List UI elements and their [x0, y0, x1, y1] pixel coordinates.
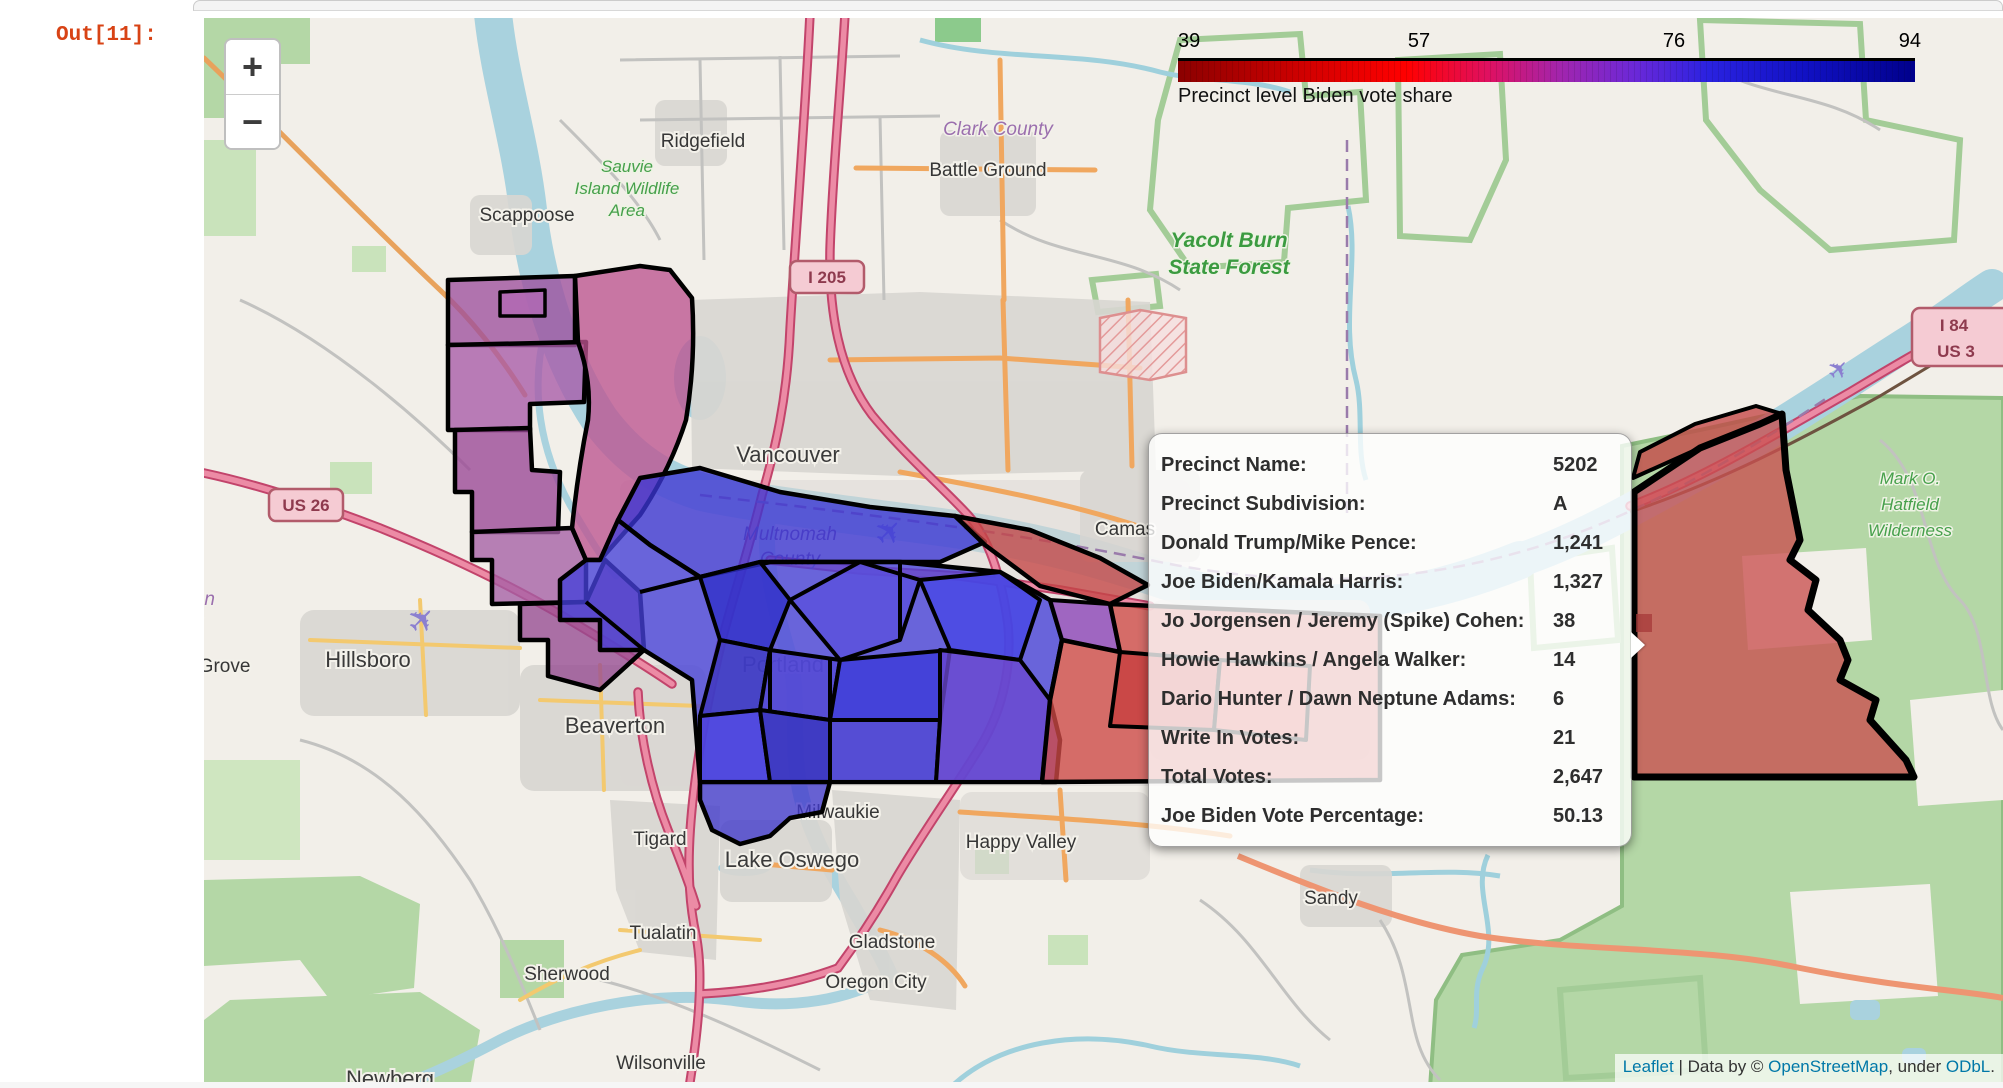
shield-label: US 26: [282, 496, 329, 515]
choropleth-legend: 39 57 76 94 Precinct level Biden vote sh…: [1178, 30, 1915, 108]
tooltip-label: Precinct Name:: [1161, 454, 1553, 477]
precinct-tooltip: Precinct Name: 5202 Precinct Subdivision…: [1148, 433, 1632, 847]
tooltip-value: 50.13: [1553, 805, 1619, 828]
tooltip-row: Joe Biden Vote Percentage: 50.13: [1161, 797, 1619, 836]
legend-tick: 94: [1899, 30, 1921, 53]
tooltip-label: Write In Votes:: [1161, 727, 1553, 750]
tooltip-value: 5202: [1553, 454, 1619, 477]
output-frame-top-bar: [193, 0, 2003, 11]
zoom-in-button[interactable]: +: [226, 40, 279, 94]
legend-caption: Precinct level Biden vote share: [1178, 85, 1915, 108]
nature-label: Area: [608, 201, 645, 220]
map-canvas: ✈ ✈ ✈ Ridgefield Clark County Battle Gro…: [204, 18, 2003, 1082]
tooltip-row: Precinct Subdivision: A: [1161, 485, 1619, 524]
city-label: Hillsboro: [325, 647, 411, 672]
nature-label: Hatfield: [1881, 495, 1939, 514]
zoom-out-button[interactable]: −: [226, 94, 279, 148]
attribution-text: .: [1990, 1057, 1995, 1076]
city-label: Sandy: [1304, 888, 1358, 909]
nature-label: Mark O.: [1880, 469, 1940, 488]
tooltip-value: 2,647: [1553, 766, 1619, 789]
odbl-link[interactable]: ODbL: [1946, 1057, 1990, 1076]
city-label: Ridgefield: [661, 131, 746, 152]
city-label: Wilsonville: [616, 1053, 706, 1074]
city-label: Tigard: [633, 829, 686, 850]
leaflet-link[interactable]: Leaflet: [1623, 1057, 1674, 1076]
city-label: Happy Valley: [966, 832, 1077, 853]
tooltip-row: Write In Votes: 21: [1161, 719, 1619, 758]
city-label: Lake Oswego: [725, 847, 860, 872]
tooltip-value: A: [1553, 493, 1619, 516]
legend-tick: 57: [1408, 30, 1430, 53]
tooltip-row: Howie Hawkins / Angela Walker: 14: [1161, 641, 1619, 680]
tooltip-label: Dario Hunter / Dawn Neptune Adams:: [1161, 688, 1553, 711]
tooltip-label: Donald Trump/Mike Pence:: [1161, 532, 1553, 555]
shield-label: I 205: [808, 268, 846, 287]
tooltip-value: 14: [1553, 649, 1619, 672]
notebook-output-area: Out[11]:: [0, 0, 2003, 1088]
legend-tick: 76: [1663, 30, 1685, 53]
county-label: Washington: [204, 589, 215, 610]
city-label: Beaverton: [565, 713, 665, 738]
jupyter-out-prompt: Out[11]:: [56, 24, 157, 47]
tooltip-value: 21: [1553, 727, 1619, 750]
city-label: Camas: [1095, 519, 1155, 540]
tooltip-row: Dario Hunter / Dawn Neptune Adams: 6: [1161, 680, 1619, 719]
city-label: Gladstone: [849, 932, 936, 953]
shield-label: US 3: [1937, 342, 1975, 361]
openstreetmap-link[interactable]: OpenStreetMap: [1768, 1057, 1888, 1076]
tooltip-value: 1,327: [1553, 571, 1619, 594]
legend-gradient-bar: [1178, 58, 1915, 82]
leaflet-zoom-control: + −: [224, 38, 281, 150]
nature-label: State Forest: [1168, 256, 1290, 279]
tooltip-label: Joe Biden Vote Percentage:: [1161, 805, 1553, 828]
attribution-text: Data by ©: [1688, 1057, 1769, 1076]
tooltip-arrow: [1631, 632, 1645, 658]
nature-label: Sauvie: [601, 157, 653, 176]
tooltip-label: Joe Biden/Kamala Harris:: [1161, 571, 1553, 594]
tooltip-row: Joe Biden/Kamala Harris: 1,327: [1161, 563, 1619, 602]
city-label: Newberg: [346, 1066, 434, 1082]
leaflet-map[interactable]: ✈ ✈ ✈ Ridgefield Clark County Battle Gro…: [204, 18, 2003, 1082]
tooltip-label: Total Votes:: [1161, 766, 1553, 789]
attribution-separator: |: [1674, 1057, 1688, 1076]
tooltip-row: Precinct Name: 5202: [1161, 446, 1619, 485]
precinct-polygon[interactable]: [760, 710, 830, 782]
nature-label: Island Wildlife: [575, 179, 680, 198]
precinct-polygon[interactable]: [830, 720, 940, 782]
tooltip-row: Total Votes: 2,647: [1161, 758, 1619, 797]
city-label: Battle Ground: [929, 160, 1046, 181]
page-bottom-strip: [0, 1082, 2003, 1088]
city-label: Oregon City: [825, 972, 927, 993]
tooltip-value: 38: [1553, 610, 1619, 633]
tooltip-value: 1,241: [1553, 532, 1619, 555]
city-label: Vancouver: [736, 442, 840, 467]
shield-label: I 84: [1940, 316, 1969, 335]
tooltip-label: Precinct Subdivision:: [1161, 493, 1553, 516]
tooltip-label: Howie Hawkins / Angela Walker:: [1161, 649, 1553, 672]
county-label: Clark County: [943, 119, 1054, 140]
precinct-detail: [1636, 614, 1652, 632]
tooltip-row: Donald Trump/Mike Pence: 1,241: [1161, 524, 1619, 563]
tooltip-label: Jo Jorgensen / Jeremy (Spike) Cohen:: [1161, 610, 1553, 633]
tooltip-value: 6: [1553, 688, 1619, 711]
legend-ticks: 39 57 76 94: [1178, 30, 1915, 58]
city-label: Scappoose: [479, 205, 574, 226]
map-attribution: Leaflet | Data by © OpenStreetMap, under…: [1615, 1054, 2003, 1082]
nature-label: Yacolt Burn: [1170, 229, 1287, 252]
attribution-text: , under: [1888, 1057, 1946, 1076]
nature-label: Wilderness: [1868, 521, 1952, 540]
city-label: Sherwood: [524, 964, 610, 985]
tooltip-row: Jo Jorgensen / Jeremy (Spike) Cohen: 38: [1161, 602, 1619, 641]
city-label: Tualatin: [630, 923, 697, 944]
legend-tick: 39: [1178, 30, 1200, 53]
restricted-area: [1100, 310, 1186, 380]
precinct-polygon[interactable]: [830, 650, 950, 720]
city-label: Forest Grove: [204, 656, 250, 677]
precinct-polygon[interactable]: [500, 290, 545, 316]
